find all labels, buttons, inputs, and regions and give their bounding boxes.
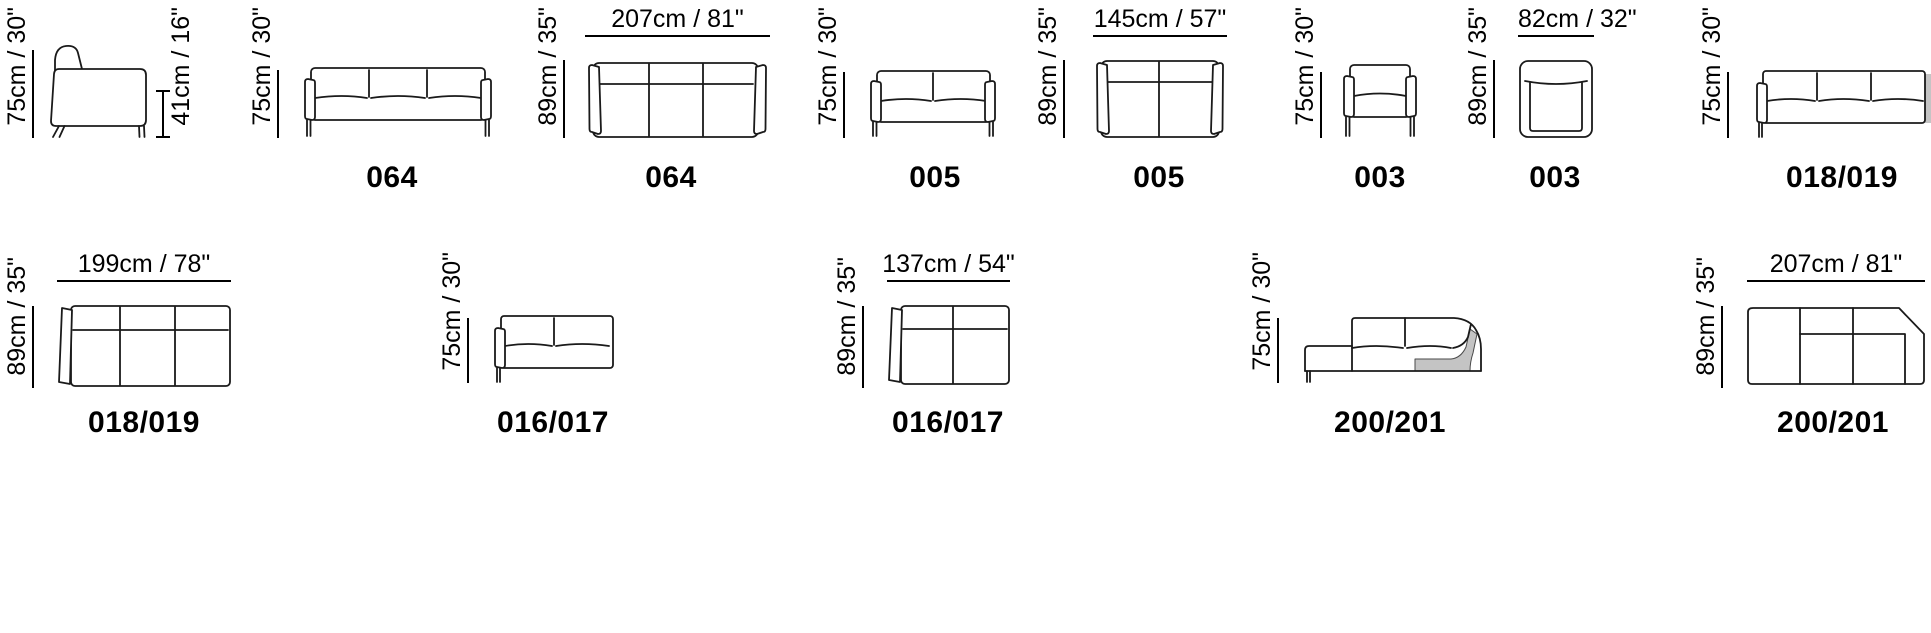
dimension-line bbox=[1727, 72, 1729, 138]
height-dimension: 75cm / 30" bbox=[247, 15, 279, 138]
width-dimension-label: 207cm / 81" bbox=[1770, 250, 1903, 278]
armchair-top-drawing bbox=[1518, 60, 1594, 138]
width-dimension: 145cm / 57" bbox=[1093, 5, 1227, 37]
model-label: 003 bbox=[1529, 161, 1581, 195]
model-label: 064 bbox=[366, 161, 418, 195]
height-dimension: 75cm / 30" bbox=[1247, 255, 1279, 383]
furniture-spec-sheet: 75cm / 30" 41cm / 16" 75cm / 30" 064 bbox=[0, 0, 1931, 633]
dimension-line bbox=[1277, 318, 1279, 383]
depth-dimension-label: 89cm / 35" bbox=[1691, 257, 1721, 376]
dimension-line bbox=[1093, 35, 1227, 37]
model-label: 016/017 bbox=[892, 406, 1004, 440]
dimension-line bbox=[32, 50, 34, 138]
width-dimension: 82cm / 32" bbox=[1518, 5, 1594, 37]
depth-dimension-label: 89cm / 35" bbox=[2, 257, 32, 376]
sofa-front-drawing bbox=[303, 67, 493, 137]
sofa-front-drawing bbox=[1755, 70, 1931, 137]
model-label: 003 bbox=[1354, 161, 1406, 195]
depth-dimension: 89cm / 35" bbox=[2, 255, 34, 388]
dimension-line bbox=[843, 72, 845, 138]
sofa-top-drawing bbox=[585, 62, 770, 138]
dimension-line bbox=[887, 280, 1010, 282]
height-dimension-label: 75cm / 30" bbox=[247, 7, 277, 126]
dimension-line bbox=[1518, 35, 1594, 37]
dimension-line bbox=[162, 90, 164, 138]
width-dimension-label: 199cm / 78" bbox=[78, 250, 211, 278]
depth-dimension: 89cm / 35" bbox=[832, 255, 864, 388]
depth-dimension-label: 89cm / 35" bbox=[832, 257, 862, 376]
height-dimension: 75cm / 30" bbox=[2, 10, 34, 138]
seat-height-dimension-label: 41cm / 16" bbox=[166, 7, 196, 126]
height-dimension-label: 75cm / 30" bbox=[1290, 7, 1320, 126]
sofa-top-drawing bbox=[57, 305, 231, 387]
dimension-line bbox=[585, 35, 770, 37]
height-dimension: 75cm / 30" bbox=[813, 15, 845, 138]
sofa-front-drawing bbox=[493, 315, 617, 382]
depth-dimension-label: 89cm / 35" bbox=[1033, 7, 1063, 126]
depth-dimension: 89cm / 35" bbox=[1463, 18, 1495, 138]
armchair-front-drawing bbox=[1342, 64, 1418, 137]
model-label: 005 bbox=[909, 161, 961, 195]
sofa-front-drawing bbox=[869, 70, 997, 137]
height-dimension-label: 75cm / 30" bbox=[1697, 7, 1727, 126]
model-label: 200/201 bbox=[1334, 406, 1446, 440]
height-dimension-label: 75cm / 30" bbox=[2, 7, 32, 126]
dimension-line bbox=[32, 306, 34, 388]
sofa-top-drawing bbox=[1093, 60, 1227, 138]
dimension-line bbox=[1747, 280, 1925, 282]
model-label: 016/017 bbox=[497, 406, 609, 440]
height-dimension: 75cm / 30" bbox=[1290, 15, 1322, 138]
seat-height-dimension: 41cm / 16" bbox=[162, 8, 196, 138]
chaise-front-drawing bbox=[1303, 317, 1482, 383]
dimension-line bbox=[467, 318, 469, 383]
sofa-side-drawing bbox=[45, 40, 161, 138]
model-label: 200/201 bbox=[1777, 406, 1889, 440]
depth-dimension-label: 89cm / 35" bbox=[1463, 7, 1493, 126]
height-dimension: 75cm / 30" bbox=[1697, 15, 1729, 138]
depth-dimension: 89cm / 35" bbox=[1033, 18, 1065, 138]
model-label: 018/019 bbox=[88, 406, 200, 440]
height-dimension: 75cm / 30" bbox=[437, 255, 469, 383]
dimension-line bbox=[1721, 306, 1723, 388]
height-dimension-label: 75cm / 30" bbox=[437, 252, 467, 371]
model-label: 018/019 bbox=[1786, 161, 1898, 195]
depth-dimension: 89cm / 35" bbox=[533, 18, 565, 138]
width-dimension-label: 82cm / 32" bbox=[1518, 5, 1637, 33]
width-dimension-label: 137cm / 54" bbox=[882, 250, 1015, 278]
dimension-line bbox=[862, 306, 864, 388]
dimension-line bbox=[1320, 72, 1322, 138]
depth-dimension: 89cm / 35" bbox=[1691, 255, 1723, 388]
dimension-line bbox=[1493, 60, 1495, 138]
width-dimension: 199cm / 78" bbox=[57, 250, 231, 282]
dimension-line bbox=[1063, 60, 1065, 138]
dimension-line bbox=[57, 280, 231, 282]
dimension-line bbox=[277, 70, 279, 138]
height-dimension-label: 75cm / 30" bbox=[1247, 252, 1277, 371]
chaise-top-drawing bbox=[1747, 307, 1925, 385]
width-dimension-label: 207cm / 81" bbox=[611, 5, 744, 33]
sofa-top-drawing bbox=[887, 305, 1010, 385]
height-dimension-label: 75cm / 30" bbox=[813, 7, 843, 126]
depth-dimension-label: 89cm / 35" bbox=[533, 7, 563, 126]
model-label: 064 bbox=[645, 161, 697, 195]
width-dimension-label: 145cm / 57" bbox=[1094, 5, 1227, 33]
width-dimension: 137cm / 54" bbox=[887, 250, 1010, 282]
dimension-line bbox=[563, 60, 565, 138]
width-dimension: 207cm / 81" bbox=[585, 5, 770, 37]
width-dimension: 207cm / 81" bbox=[1747, 250, 1925, 282]
model-label: 005 bbox=[1133, 161, 1185, 195]
